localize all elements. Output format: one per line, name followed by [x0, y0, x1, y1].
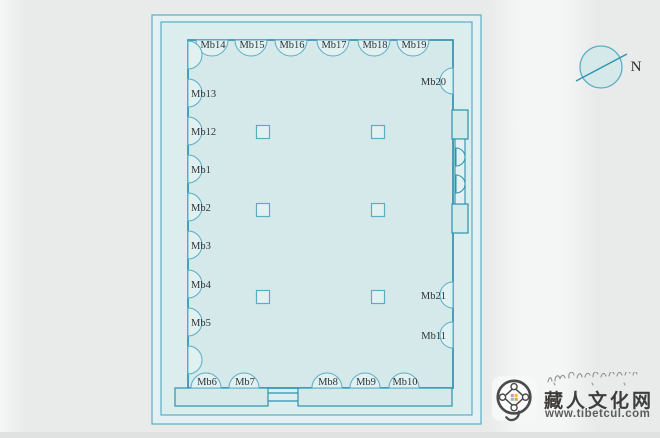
- pillar-label-Mb18: Mb18: [362, 40, 387, 51]
- tibetcul-knot-logo-icon: [492, 376, 538, 426]
- pillar-label-Mb8: Mb8: [318, 377, 338, 388]
- pillar-label-Mb3: Mb3: [191, 241, 211, 252]
- pillar-label-Mb7: Mb7: [235, 377, 255, 388]
- side-door-jamb-bottom: [452, 204, 468, 233]
- bottom-wall-right-block: [298, 388, 452, 406]
- interior-pillar: [372, 204, 385, 217]
- pillar-label-Mb4: Mb4: [191, 280, 212, 291]
- pillar-label-Mb10: Mb10: [392, 377, 417, 388]
- pillar-label-Mb13: Mb13: [191, 89, 216, 100]
- interior-pillar: [257, 291, 270, 304]
- pillar-label-Mb6: Mb6: [197, 377, 217, 388]
- pillar-label-Mb16: Mb16: [279, 40, 304, 51]
- interior-pillar: [372, 126, 385, 139]
- watermark: 藏人文化网 www.tibetcul.com: [490, 368, 658, 430]
- tibetan-script-decoration: [546, 372, 644, 386]
- pillar-label-Mb15: Mb15: [239, 40, 264, 51]
- pillar-label-Mb5: Mb5: [191, 318, 211, 329]
- side-door-jamb-top: [452, 110, 468, 139]
- interior-pillar: [257, 204, 270, 217]
- pillar-label-Mb11: Mb11: [421, 331, 446, 342]
- pillar-label-Mb17: Mb17: [321, 40, 346, 51]
- hall-wall: [188, 40, 453, 388]
- bottom-wall-left-block: [175, 388, 268, 406]
- watermark-site-url: www.tibetcul.com: [545, 408, 655, 420]
- pillar-label-Mb12: Mb12: [191, 127, 216, 138]
- north-label: N: [631, 59, 642, 75]
- scanned-floor-plan-figure: Mb14Mb15Mb16Mb17Mb18Mb19Mb13Mb12Mb1Mb2Mb…: [0, 0, 660, 438]
- interior-pillar: [257, 126, 270, 139]
- pillar-label-Mb1: Mb1: [191, 165, 211, 176]
- pillar-label-Mb20: Mb20: [421, 77, 446, 88]
- interior-pillar: [372, 291, 385, 304]
- pillar-label-Mb9: Mb9: [356, 377, 376, 388]
- pillar-label-Mb2: Mb2: [191, 203, 211, 214]
- pillar-label-Mb21: Mb21: [421, 291, 446, 302]
- pillar-label-Mb14: Mb14: [200, 40, 226, 51]
- pillar-label-Mb19: Mb19: [401, 40, 426, 51]
